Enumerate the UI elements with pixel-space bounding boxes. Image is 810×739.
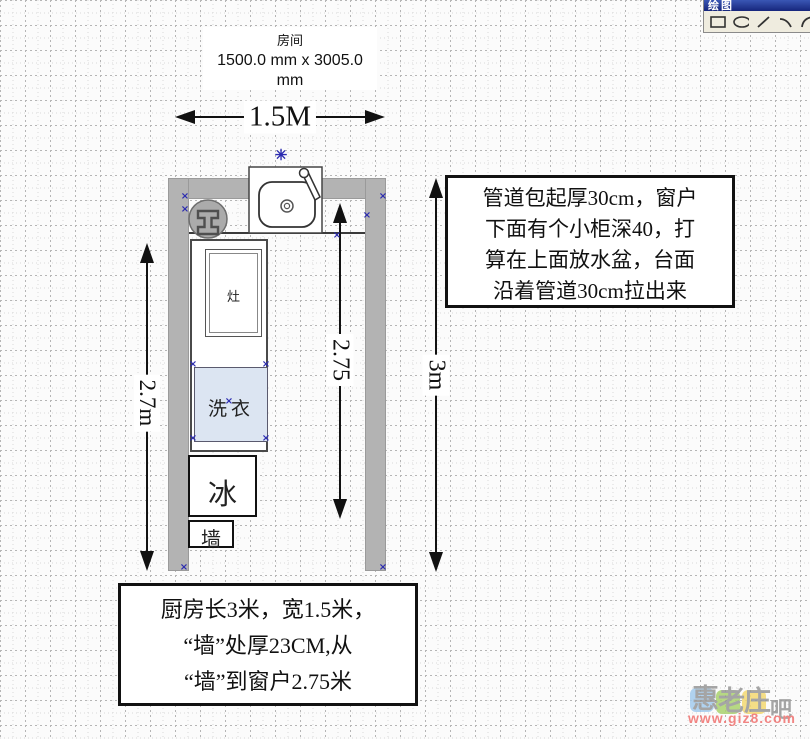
kitchen-note-line3: “墙”到窗户2.75米 — [121, 664, 415, 700]
sink[interactable] — [248, 166, 324, 234]
stove-label: 灶 — [206, 286, 261, 305]
pipe-note-line4: 沿着管道30cm拉出来 — [448, 276, 732, 307]
selection-x-handle[interactable]: × — [225, 397, 233, 407]
fridge-label: 冰 — [190, 471, 255, 513]
pipe-note-box[interactable]: 管道包起厚30cm，窗户 下面有个小柜深40，打 算在上面放水盆，台面 沿着管道… — [445, 175, 735, 308]
selection-x-handle[interactable]: × — [379, 563, 387, 573]
room-size-line1: 1500.0 mm x 3005.0 — [203, 52, 377, 70]
selection-x-handle[interactable]: × — [262, 434, 270, 444]
stove[interactable]: 灶 — [205, 249, 262, 337]
drawing-palette[interactable]: 绘图 — [703, 0, 810, 33]
fridge[interactable]: 冰 — [188, 455, 257, 517]
room-name: 房间 — [203, 30, 377, 49]
kitchen-note-box[interactable]: 厨房长3米，宽1.5米， “墙”处厚23CM,从 “墙”到窗户2.75米 — [118, 583, 418, 706]
palette-titlebar[interactable]: 绘图 — [704, 0, 810, 11]
arc-tool-icon[interactable] — [778, 14, 793, 30]
selection-star-handle[interactable]: ✳ — [275, 150, 288, 162]
wall-stub[interactable]: 墙 — [188, 520, 234, 548]
ellipse-tool-icon[interactable] — [733, 14, 749, 30]
selection-x-handle[interactable]: × — [333, 231, 341, 241]
dim-left-label: 2.7m — [134, 375, 160, 432]
rectangle-tool-icon[interactable] — [710, 14, 726, 30]
palette-title: 绘图 — [708, 0, 734, 11]
selection-x-handle[interactable]: × — [181, 192, 189, 202]
dim-right-label: 3m — [423, 355, 450, 396]
room-title-block[interactable]: 房间 1500.0 mm x 3005.0 mm — [203, 27, 377, 90]
selection-x-handle[interactable]: × — [262, 360, 270, 370]
arc2-tool-icon[interactable] — [800, 14, 810, 30]
selection-x-handle[interactable]: × — [180, 563, 188, 573]
selection-x-handle[interactable]: × — [189, 434, 197, 444]
kitchen-note-line2: “墙”处厚23CM,从 — [121, 628, 415, 664]
dim-inner-label: 2.75 — [327, 334, 354, 386]
selection-x-handle[interactable]: × — [379, 192, 387, 202]
pipe-column[interactable] — [187, 198, 229, 240]
selection-x-handle[interactable]: × — [181, 205, 189, 215]
selection-x-handle[interactable]: × — [363, 211, 371, 221]
watermark-url: www.giz8.com — [688, 710, 796, 726]
wall-stub-label: 墙 — [190, 523, 232, 552]
wall-right[interactable] — [365, 178, 386, 571]
selection-x-handle[interactable]: × — [189, 360, 197, 370]
pipe-note-line2: 下面有个小柜深40，打 — [448, 214, 732, 245]
pipe-note-line3: 算在上面放水盆，台面 — [448, 245, 732, 276]
watermark-char-1: 惠 — [692, 686, 719, 713]
pipe-note-line1: 管道包起厚30cm，窗户 — [448, 183, 732, 214]
room-size-line2: mm — [203, 72, 377, 90]
wall-left[interactable] — [168, 178, 189, 571]
kitchen-note-line1: 厨房长3米，宽1.5米， — [121, 592, 415, 628]
line-tool-icon[interactable] — [756, 14, 771, 30]
dim-width-label: 1.5M — [244, 101, 316, 134]
